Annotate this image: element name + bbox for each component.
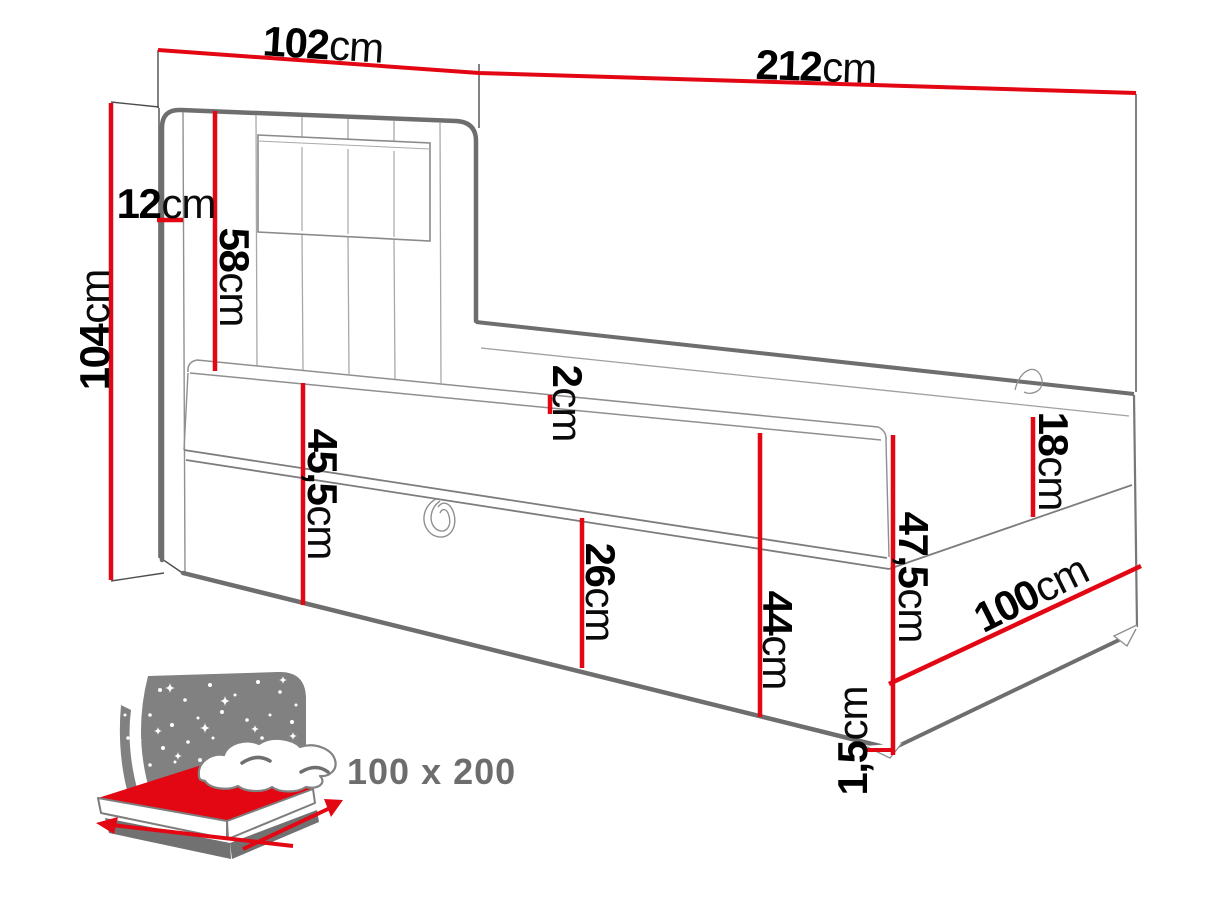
dim-label-headboard-above-mattress: 58cm <box>213 228 255 327</box>
dim-value: 212 <box>755 41 822 90</box>
extension-tick-104-top <box>111 102 159 107</box>
dim-value: 104 <box>71 325 118 391</box>
dim-label-side-height: 44cm <box>756 591 798 690</box>
dim-value: 102 <box>261 17 329 68</box>
mattress-top-edge-upper <box>188 360 886 441</box>
dim-unit: cm <box>821 43 877 92</box>
dim-unit: cm <box>829 687 876 741</box>
mattress-top-edge-lower <box>190 373 881 440</box>
dim-unit: cm <box>1030 456 1077 510</box>
box-top-line-upper <box>184 450 887 558</box>
dim-value: 47,5 <box>890 512 937 588</box>
dim-label-drawer-front-height: 26cm <box>579 543 621 642</box>
dim-unit: cm <box>544 387 591 441</box>
dim-unit: cm <box>299 505 346 559</box>
dim-unit: cm <box>890 588 937 642</box>
dim-label-topper-thickness: 2cm <box>546 365 588 442</box>
headboard-inset-panel <box>258 135 430 241</box>
dim-label-headboard-width: 102cm <box>262 20 385 69</box>
dim-unit: cm <box>754 635 801 689</box>
dim-value: 26 <box>577 543 624 587</box>
box-top-line-lower <box>186 460 889 569</box>
dim-label-side-height-to-floor: 45,5cm <box>301 429 343 560</box>
bed-size-icon <box>96 672 343 859</box>
dim-value: 1,5 <box>829 742 876 796</box>
dim-label-headboard-depth: 12cm <box>117 183 216 225</box>
dim-unit: cm <box>211 272 258 326</box>
dim-value: 12 <box>117 180 161 227</box>
dim-label-floor-clearance: 1,5cm <box>832 687 874 796</box>
dim-value: 44 <box>754 591 801 635</box>
panel-outer <box>258 135 430 241</box>
dim-value: 58 <box>211 228 258 272</box>
icon-bed <box>96 739 343 859</box>
mattress-size-label: 100 x 200 <box>347 751 516 793</box>
dim-label-mattress-height: 18cm <box>1032 412 1074 511</box>
dim-value: 2 <box>544 365 591 387</box>
dim-label-bed-length: 212cm <box>755 44 877 90</box>
bed-dimension-diagram-page: 102cm 212cm 104cm 12cm 58cm 2cm 45,5cm 2… <box>0 0 1214 911</box>
dim-unit: cm <box>161 180 215 227</box>
dim-value: 45,5 <box>299 429 346 505</box>
mattress-right-front-edge <box>886 441 889 557</box>
bed-end-bottom-edge <box>894 639 1121 748</box>
extension-lines <box>111 50 1136 581</box>
dim-unit: cm <box>328 21 385 71</box>
dim-label-foot-end-total-height: 47,5cm <box>892 512 934 643</box>
dim-label-headboard-height: 104cm <box>74 270 116 391</box>
drawer-handle <box>424 499 455 537</box>
dim-value: 18 <box>1030 412 1077 456</box>
dim-unit: cm <box>577 587 624 641</box>
dim-unit: cm <box>71 270 118 324</box>
extension-tick-104-bottom <box>111 573 164 581</box>
bed-right-back-edge <box>1134 395 1137 627</box>
